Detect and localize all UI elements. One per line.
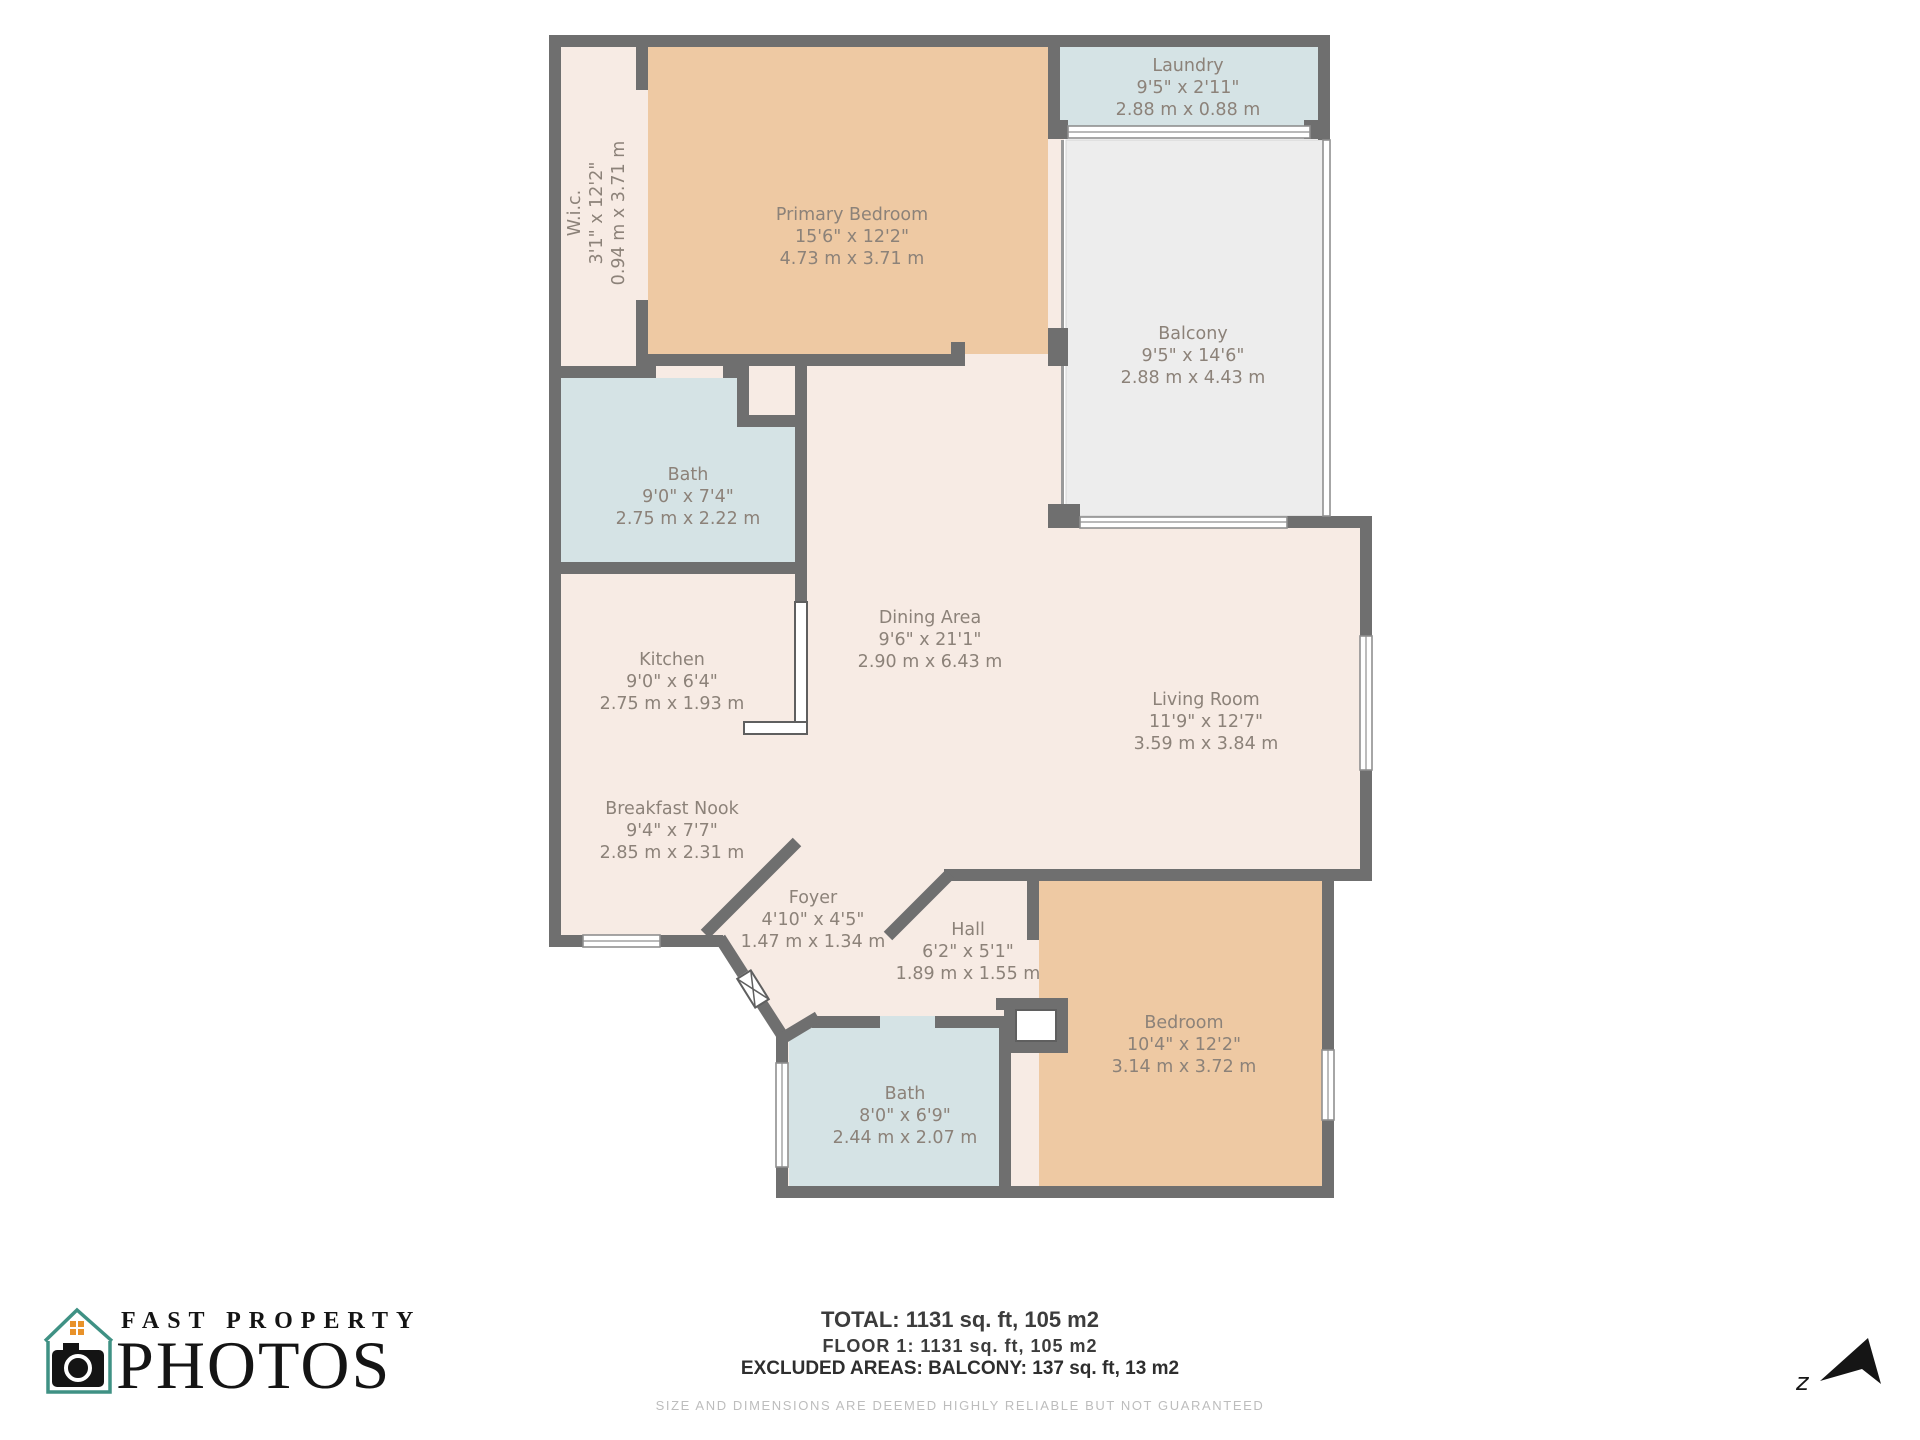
room-label-foyer: Foyer4'10" x 4'5"1.47 m x 1.34 m — [741, 887, 886, 953]
room-label-living_room: Living Room11'9" x 12'7"3.59 m x 3.84 m — [1134, 689, 1279, 755]
bath1-notch — [749, 366, 795, 415]
room-dimension-metric: 1.47 m x 1.34 m — [741, 931, 886, 953]
room-dimension-metric: 2.88 m x 4.43 m — [1121, 367, 1266, 389]
room-dimension-imperial: 8'0" x 6'9" — [833, 1105, 978, 1127]
room-fill-primary-bedroom — [648, 47, 1048, 354]
room-dimension-metric: 0.94 m x 3.71 m — [608, 141, 630, 286]
room-dimension-metric: 3.14 m x 3.72 m — [1112, 1056, 1257, 1078]
wall-segment — [944, 869, 1372, 881]
room-dimension-metric: 3.59 m x 3.84 m — [1134, 733, 1279, 755]
room-dimension-metric: 2.85 m x 2.31 m — [600, 842, 745, 864]
room-dimension-imperial: 6'2" x 5'1" — [896, 941, 1041, 963]
room-label-primary_bedroom: Primary Bedroom15'6" x 12'2"4.73 m x 3.7… — [776, 204, 928, 270]
room-name: Bedroom — [1112, 1012, 1257, 1034]
room-dimension-imperial: 10'4" x 12'2" — [1112, 1034, 1257, 1056]
room-dimension-metric: 2.90 m x 6.43 m — [858, 651, 1003, 673]
room-dimension-imperial: 3'1" x 12'2" — [586, 141, 608, 286]
wall-segment — [951, 342, 965, 366]
room-name: W.i.c. — [564, 141, 586, 286]
room-dimension-imperial: 9'5" x 14'6" — [1121, 345, 1266, 367]
room-name: Bath — [833, 1083, 978, 1105]
wall-segment — [1048, 47, 1060, 120]
room-name: Dining Area — [858, 607, 1003, 629]
room-label-bedroom: Bedroom10'4" x 12'2"3.14 m x 3.72 m — [1112, 1012, 1257, 1078]
room-dimension-metric: 4.73 m x 3.71 m — [776, 248, 928, 270]
balcony-railing — [1323, 140, 1330, 516]
room-label-balcony: Balcony9'5" x 14'6"2.88 m x 4.43 m — [1121, 323, 1266, 389]
room-name: Bath — [616, 464, 761, 486]
wall-segment — [561, 366, 656, 378]
room-label-laundry: Laundry9'5" x 2'11"2.88 m x 0.88 m — [1116, 55, 1261, 121]
room-dimension-imperial: 11'9" x 12'7" — [1134, 711, 1279, 733]
closet-icon — [1016, 1010, 1056, 1041]
room-dimension-imperial: 15'6" x 12'2" — [776, 226, 928, 248]
room-label-dining_area: Dining Area9'6" x 21'1"2.90 m x 6.43 m — [858, 607, 1003, 673]
room-name: Laundry — [1116, 55, 1261, 77]
room-name: Primary Bedroom — [776, 204, 928, 226]
room-dimension-metric: 2.88 m x 0.88 m — [1116, 99, 1261, 121]
wall-segment — [1287, 516, 1372, 528]
room-label-bath_2: Bath8'0" x 6'9"2.44 m x 2.07 m — [833, 1083, 978, 1149]
wall-segment — [549, 35, 1330, 47]
camera-icon — [52, 1343, 104, 1387]
wall-segment — [1048, 504, 1080, 528]
wall-segment — [636, 47, 648, 90]
wall-segment — [549, 35, 561, 947]
floor-plan — [0, 0, 1920, 1440]
room-dimension-imperial: 4'10" x 4'5" — [741, 909, 886, 931]
wall-segment — [1056, 998, 1068, 1053]
room-dimension-imperial: 9'0" x 7'4" — [616, 486, 761, 508]
wall-segment — [549, 562, 807, 574]
room-name: Hall — [896, 919, 1041, 941]
room-label-kitchen: Kitchen9'0" x 6'4"2.75 m x 1.93 m — [600, 649, 745, 715]
room-dimension-imperial: 9'5" x 2'11" — [1116, 77, 1261, 99]
room-name: Kitchen — [600, 649, 745, 671]
wall-segment — [1048, 120, 1068, 139]
wall-segment — [776, 1186, 1334, 1198]
room-dimension-metric: 2.75 m x 2.22 m — [616, 508, 761, 530]
logo-text-line2: PHOTOS — [116, 1326, 391, 1405]
wall-segment — [636, 354, 965, 366]
room-dimension-imperial: 9'0" x 6'4" — [600, 671, 745, 693]
room-name: Foyer — [741, 887, 886, 909]
compass-label: z — [1796, 1368, 1809, 1396]
room-dimension-imperial: 9'4" x 7'7" — [600, 820, 745, 842]
room-name: Balcony — [1121, 323, 1266, 345]
room-label-hall: Hall6'2" x 5'1"1.89 m x 1.55 m — [896, 919, 1041, 985]
room-dimension-metric: 1.89 m x 1.55 m — [896, 963, 1041, 985]
room-label-bath_1: Bath9'0" x 7'4"2.75 m x 2.22 m — [616, 464, 761, 530]
room-name: Breakfast Nook — [600, 798, 745, 820]
wall-segment — [1322, 869, 1334, 1198]
wall-segment — [1048, 328, 1068, 366]
room-dimension-metric: 2.44 m x 2.07 m — [833, 1127, 978, 1149]
wall-segment — [999, 1016, 1011, 1198]
house-window-icon — [70, 1321, 84, 1335]
wall-segment — [812, 1016, 880, 1028]
room-dimension-imperial: 9'6" x 21'1" — [858, 629, 1003, 651]
room-label-breakfast_nook: Breakfast Nook9'4" x 7'7"2.85 m x 2.31 m — [600, 798, 745, 864]
room-dimension-metric: 2.75 m x 1.93 m — [600, 693, 745, 715]
room-name: Living Room — [1134, 689, 1279, 711]
room-label-wic: W.i.c.3'1" x 12'2"0.94 m x 3.71 m — [564, 141, 630, 286]
